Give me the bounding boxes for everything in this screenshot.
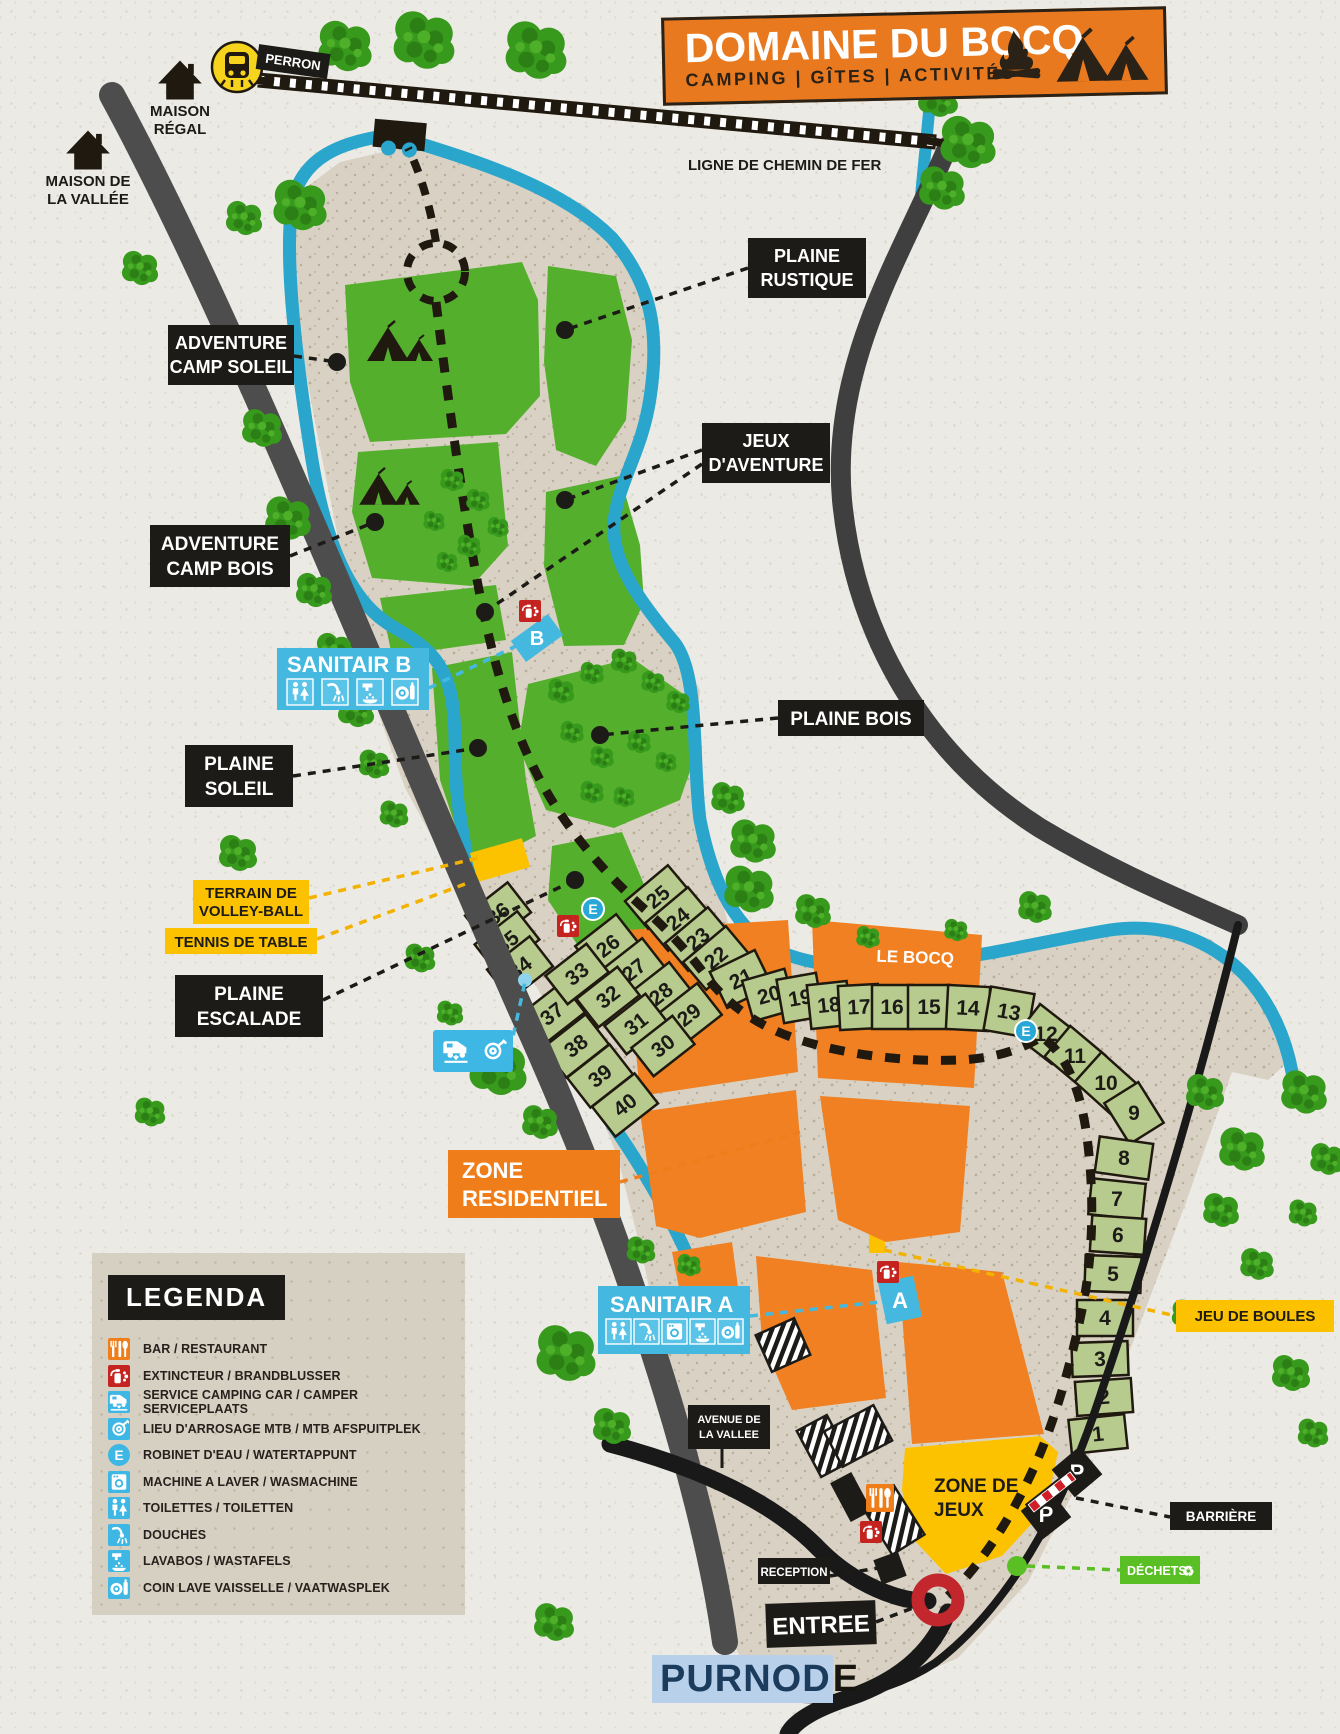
washing-machine-icon <box>667 1323 682 1339</box>
svg-text:E: E <box>114 1448 123 1463</box>
tree-icon <box>1310 1143 1340 1175</box>
tree-icon <box>135 1098 165 1127</box>
road-east-outer <box>841 146 1238 925</box>
mtb-wash-icon <box>108 1418 130 1440</box>
svg-text:4: 4 <box>1099 1307 1111 1330</box>
svg-text:LA VALLEE: LA VALLEE <box>699 1429 759 1441</box>
svg-text:ZONE: ZONE <box>462 1158 523 1183</box>
svg-text:PLAINE BOIS: PLAINE BOIS <box>790 709 911 730</box>
tree-icon <box>795 894 831 928</box>
svg-text:6: 6 <box>1111 1224 1124 1248</box>
legend-item: EXTINCTEUR / BRANDBLUSSER <box>108 1363 451 1390</box>
label-le-bocq: LE BOCQ <box>876 947 954 969</box>
svg-text:9: 9 <box>1128 1102 1140 1125</box>
svg-text:17: 17 <box>847 995 872 1019</box>
camper-service-station <box>433 1030 513 1072</box>
tree-icon <box>1219 1127 1265 1170</box>
tent-icon <box>1104 37 1149 81</box>
svg-text:E: E <box>1021 1023 1030 1039</box>
sanitair-a-icons <box>606 1319 743 1344</box>
legend-item: COIN LAVE VAISSELLE / VAATWASPLEK <box>108 1575 451 1602</box>
tree-icon <box>593 1408 631 1444</box>
svg-text:14: 14 <box>956 996 981 1020</box>
tree-icon <box>1289 1200 1318 1227</box>
legend-title: LEGENDA <box>108 1275 285 1320</box>
svg-text:VOLLEY-BALL: VOLLEY-BALL <box>199 903 303 920</box>
tree-icon <box>940 116 995 168</box>
svg-text:15: 15 <box>917 996 941 1019</box>
legend-item: MACHINE A LAVER / WASMACHINE <box>108 1469 451 1496</box>
extinguisher-icon <box>108 1365 130 1387</box>
svg-text:SANITAIR B: SANITAIR B <box>287 652 411 677</box>
svg-text:A: A <box>892 1288 908 1313</box>
tree-icon <box>1281 1070 1327 1113</box>
svg-text:ADVENTURE: ADVENTURE <box>161 534 279 555</box>
legend-item: BAR / RESTAURANT <box>108 1336 451 1363</box>
svg-text:JEUX: JEUX <box>934 1500 984 1521</box>
svg-text:PLAINE: PLAINE <box>204 754 274 775</box>
svg-text:BARRIÈRE: BARRIÈRE <box>1186 1509 1257 1524</box>
legend-item: DOUCHES <box>108 1522 451 1549</box>
extinguisher-icon <box>519 600 541 622</box>
plot-15: 15 <box>908 985 950 1029</box>
svg-text:JEU DE BOULES: JEU DE BOULES <box>1195 1308 1316 1325</box>
legend-item: SERVICE CAMPING CAR / CAMPER SERVICEPLAA… <box>108 1389 451 1416</box>
label-dechets: DÉCHETS ♻ <box>1120 1556 1200 1584</box>
svg-text:PLAINE: PLAINE <box>774 246 840 266</box>
plot-7: 7 <box>1088 1178 1145 1219</box>
svg-text:RÉGAL: RÉGAL <box>154 121 207 138</box>
label-tennis-table: TENNIS DE TABLE <box>165 928 317 954</box>
tree-icon <box>1272 1355 1310 1391</box>
village-name: PURNODE <box>652 1658 859 1701</box>
tree-icon <box>1240 1248 1273 1280</box>
plot-16: 16 <box>872 985 912 1029</box>
label-entree: ENTREE <box>765 1600 876 1648</box>
tree-icon <box>1298 1419 1328 1448</box>
svg-text:PLAINE: PLAINE <box>214 984 284 1005</box>
sink-icon <box>108 1550 130 1572</box>
svg-text:RESIDENTIEL: RESIDENTIEL <box>462 1186 607 1211</box>
label-sanitair-b: SANITAIR B <box>277 648 429 710</box>
plot-6: 6 <box>1090 1215 1146 1255</box>
extinguisher-icon <box>877 1261 899 1283</box>
toilets-icon <box>108 1497 130 1519</box>
tent-icon <box>1055 29 1110 82</box>
svg-text:LA VALLÉE: LA VALLÉE <box>47 191 129 208</box>
bar-restaurant-icon <box>108 1338 130 1360</box>
plot-8: 8 <box>1095 1136 1153 1179</box>
legend-item: EROBINET D'EAU / WATERTAPPUNT <box>108 1442 451 1469</box>
svg-text:ADVENTURE: ADVENTURE <box>175 333 287 353</box>
label-plaine-bois: PLAINE BOIS <box>778 700 924 736</box>
label-railway-line: LIGNE DE CHEMIN DE FER <box>688 157 882 174</box>
legend-item: LIEU D'ARROSAGE MTB / MTB AFSPUITPLEK <box>108 1416 451 1443</box>
tree-icon <box>1018 891 1051 923</box>
svg-text:SOLEIL: SOLEIL <box>205 779 274 800</box>
svg-text:SANITAIR A: SANITAIR A <box>610 1292 734 1317</box>
legend-item: TOILETTES / TOILETTEN <box>108 1495 451 1522</box>
label-barriere: BARRIÈRE <box>1170 1502 1272 1530</box>
label-maison-regal: MAISON RÉGAL <box>150 103 210 138</box>
tree-icon <box>394 11 455 69</box>
legend-item: LAVABOS / WASTAFELS <box>108 1548 451 1575</box>
dishwashing-icon <box>108 1577 130 1599</box>
extinguisher-icon <box>860 1521 882 1543</box>
water-tap-icon: E <box>582 898 604 920</box>
tree-icon <box>919 166 965 209</box>
shower-icon <box>108 1524 130 1546</box>
tree-icon <box>122 251 158 285</box>
svg-text:10: 10 <box>1094 1072 1117 1095</box>
label-plaine-escalade: PLAINE ESCALADE <box>175 975 323 1037</box>
svg-text:TENNIS DE TABLE: TENNIS DE TABLE <box>174 934 307 951</box>
label-terrain-volley: TERRAIN DE VOLLEY-BALL <box>193 880 309 924</box>
label-jeu-boules: JEU DE BOULES <box>1176 1300 1334 1332</box>
tree-icon <box>437 1001 463 1026</box>
house-icon <box>158 60 202 99</box>
tree-icon <box>730 819 776 862</box>
svg-text:7: 7 <box>1111 1188 1123 1211</box>
camper-service-icon <box>108 1391 130 1413</box>
label-adventure-camp-bois: ADVENTURE CAMP BOIS <box>150 525 290 587</box>
tree-icon <box>219 835 257 871</box>
tree-icon <box>534 1603 574 1641</box>
washing-machine-icon <box>108 1471 130 1493</box>
svg-text:ZONE DE: ZONE DE <box>934 1476 1018 1497</box>
bar-restaurant-icon <box>866 1484 894 1512</box>
camping-map-poster: 36 35 34 37 38 39 40 26 27 28 29 33 32 3… <box>0 0 1340 1734</box>
water-tap-icon: E <box>108 1444 130 1466</box>
label-reception: RECEPTION <box>758 1558 830 1584</box>
label-sanitair-a: SANITAIR A <box>598 1286 750 1354</box>
tree-icon <box>724 866 773 913</box>
svg-text:ESCALADE: ESCALADE <box>197 1009 302 1030</box>
house-icon <box>66 130 110 169</box>
svg-text:MAISON DE: MAISON DE <box>45 173 130 190</box>
label-plaine-rustique: PLAINE RUSTIQUE <box>748 238 866 298</box>
svg-text:E: E <box>588 901 597 917</box>
label-maison-vallee: MAISON DE LA VALLÉE <box>45 173 130 208</box>
tree-icon <box>506 21 567 79</box>
title-banner: DOMAINE DU BOCQ CAMPING | GÎTES | ACTIVI… <box>661 6 1168 105</box>
tree-icon <box>537 1325 596 1381</box>
extinguisher-icon <box>557 915 579 937</box>
svg-text:RUSTIQUE: RUSTIQUE <box>760 270 853 290</box>
banner-icons <box>985 18 1157 99</box>
campfire-icon <box>991 30 1040 80</box>
svg-text:JEUX: JEUX <box>742 431 789 451</box>
svg-text:D'AVENTURE: D'AVENTURE <box>709 455 824 475</box>
svg-text:RECEPTION: RECEPTION <box>760 1567 827 1579</box>
svg-text:3: 3 <box>1094 1348 1106 1371</box>
legend-panel: LEGENDA BAR / RESTAURANT EXTINCTEUR / BR… <box>92 1253 465 1615</box>
train-icon <box>212 42 262 92</box>
tree-icon <box>711 782 744 814</box>
svg-text:DÉCHETS: DÉCHETS <box>1127 1563 1187 1578</box>
svg-text:CAMP SOLEIL: CAMP SOLEIL <box>170 357 293 377</box>
tree-icon <box>1203 1193 1239 1227</box>
svg-text:MAISON: MAISON <box>150 103 210 120</box>
water-tap-icon: E <box>1015 1020 1037 1042</box>
svg-text:CAMP BOIS: CAMP BOIS <box>166 559 273 580</box>
label-plaine-soleil: PLAINE SOLEIL <box>185 745 293 807</box>
label-jeux-aventure: JEUX D'AVENTURE <box>702 423 830 483</box>
tree-icon <box>226 201 262 235</box>
tree-icon <box>380 801 409 828</box>
label-adventure-camp-soleil: ADVENTURE CAMP SOLEIL <box>168 325 294 385</box>
svg-text:16: 16 <box>880 996 903 1019</box>
tree-icon <box>944 919 968 941</box>
recycle-icon: ♻ <box>1182 1563 1195 1579</box>
svg-text:TERRAIN DE: TERRAIN DE <box>205 885 297 902</box>
waste-point-dot <box>1007 1556 1027 1576</box>
svg-text:ENTREE: ENTREE <box>772 1610 870 1640</box>
svg-text:AVENUE DE: AVENUE DE <box>697 1414 760 1426</box>
svg-text:5: 5 <box>1107 1263 1120 1286</box>
label-zone-residentiel: ZONE RESIDENTIEL <box>448 1150 620 1218</box>
svg-text:8: 8 <box>1118 1147 1130 1170</box>
svg-text:B: B <box>530 628 544 650</box>
